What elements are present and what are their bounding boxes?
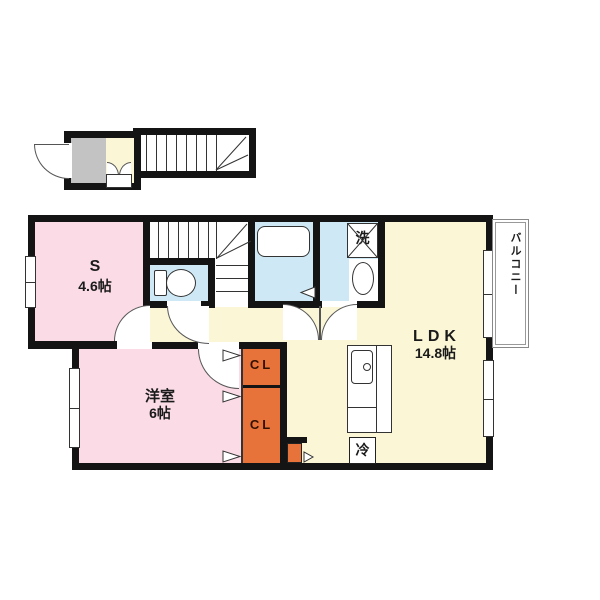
closet-lower-label: CL — [243, 418, 280, 432]
wall — [241, 385, 280, 388]
refrigerator-space: 冷 — [349, 437, 376, 464]
stair-tread — [158, 222, 159, 258]
bathtub — [257, 226, 310, 257]
kitchen-faucet — [363, 363, 371, 371]
wall — [152, 342, 198, 349]
stair-tread — [216, 291, 248, 292]
washing-machine-label: 洗 — [347, 231, 378, 246]
wall — [313, 222, 320, 301]
stair-tread — [188, 222, 189, 258]
stair-tread — [216, 222, 217, 259]
wall — [280, 342, 287, 470]
wall — [28, 215, 493, 222]
western-room-name: 洋室 — [120, 389, 200, 406]
wall — [248, 222, 255, 308]
stair-tread — [206, 135, 207, 171]
stair-tread — [196, 135, 197, 171]
western-room-size: 6帖 — [120, 406, 200, 421]
stair-tread — [146, 135, 147, 171]
wall — [143, 258, 215, 265]
refrigerator-label: 冷 — [356, 443, 370, 458]
stair-tread — [168, 222, 169, 258]
stair-tread — [178, 222, 179, 258]
ldk-name: LDK — [397, 328, 477, 346]
window — [25, 256, 36, 308]
service-room-size: 4.6帖 — [55, 279, 135, 294]
stair-tread — [176, 135, 177, 171]
window — [69, 368, 80, 448]
wall — [357, 301, 385, 308]
stair-tread — [216, 135, 217, 171]
ldk-floor — [385, 222, 486, 342]
door-leaf-line — [319, 306, 321, 340]
window — [483, 360, 494, 437]
shoe-cabinet — [106, 174, 132, 188]
service-room-name: S — [60, 258, 130, 276]
small-storage — [287, 443, 302, 463]
stair-tread — [198, 222, 199, 258]
kitchen-counter-divider — [348, 407, 376, 408]
kitchen-bar-counter — [376, 345, 392, 433]
stair-tread — [208, 222, 209, 258]
floor-plan: バルコニー 洗 冷 — [0, 0, 600, 600]
closet-upper-label: CL — [243, 358, 280, 372]
stair-tread — [156, 135, 157, 171]
stair-tread — [166, 135, 167, 171]
vanity-sink — [352, 262, 374, 295]
stair-tread — [216, 278, 248, 279]
stair-tread — [216, 265, 248, 266]
toilet-bowl — [166, 269, 196, 297]
front-door-swing — [34, 144, 69, 179]
ldk-size: 14.8帖 — [393, 346, 478, 361]
wall — [378, 222, 385, 308]
stair-tread — [186, 135, 187, 171]
balcony-label: バルコニー — [499, 232, 521, 340]
